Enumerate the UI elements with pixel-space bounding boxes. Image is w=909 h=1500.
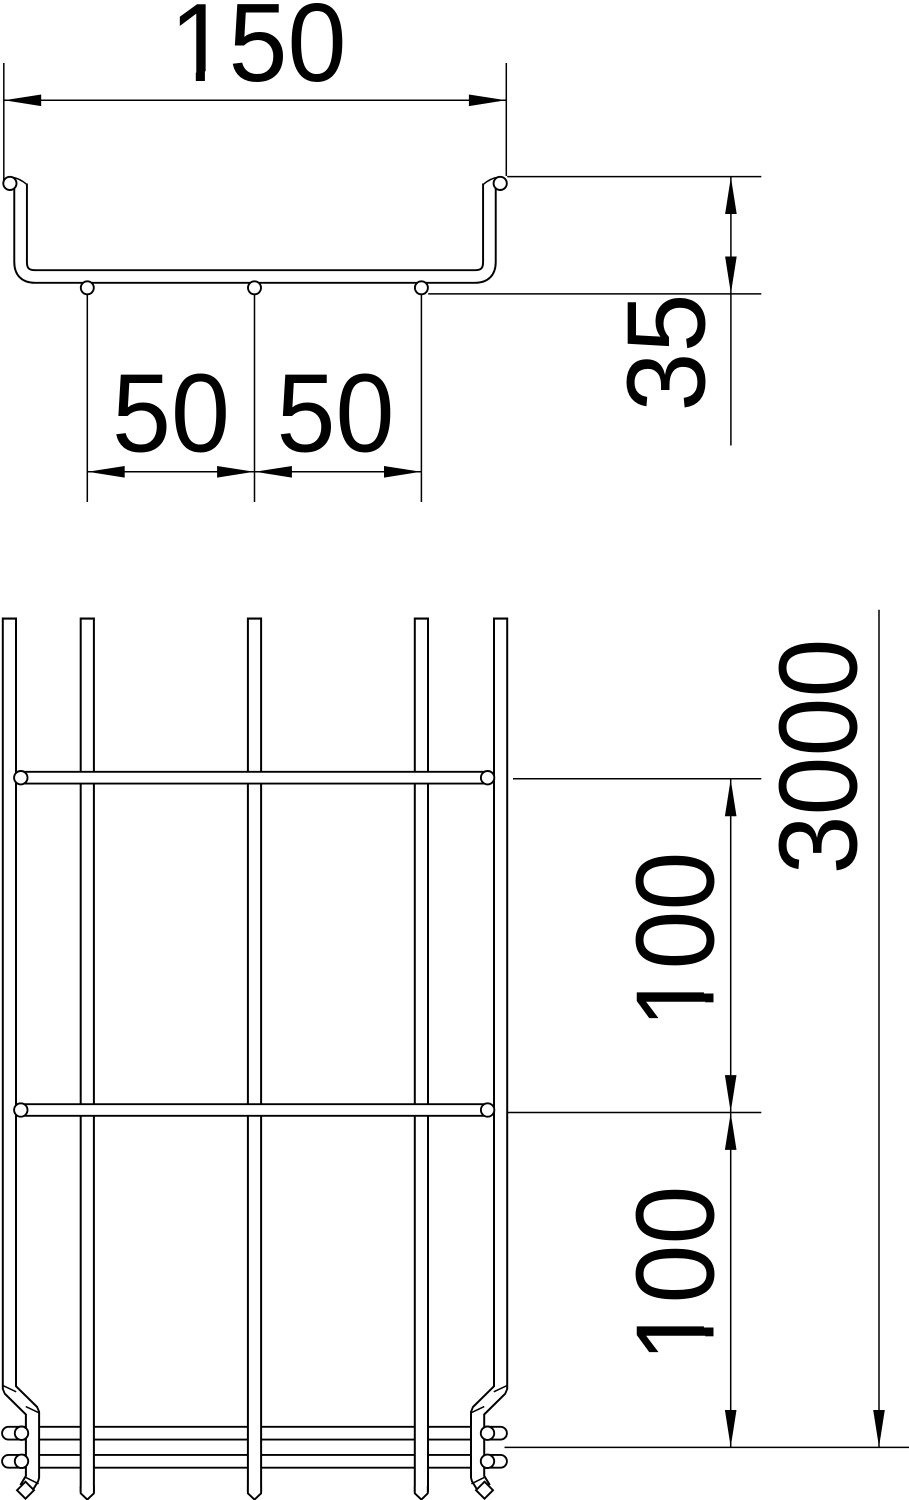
svg-text:35: 35 [604,294,729,412]
svg-text:50: 50 [277,351,395,476]
svg-text:100: 100 [613,1186,738,1363]
svg-text:3000: 3000 [756,639,881,875]
svg-text:50: 50 [112,351,230,476]
svg-text:100: 100 [613,852,738,1029]
svg-text:150: 150 [170,0,347,106]
